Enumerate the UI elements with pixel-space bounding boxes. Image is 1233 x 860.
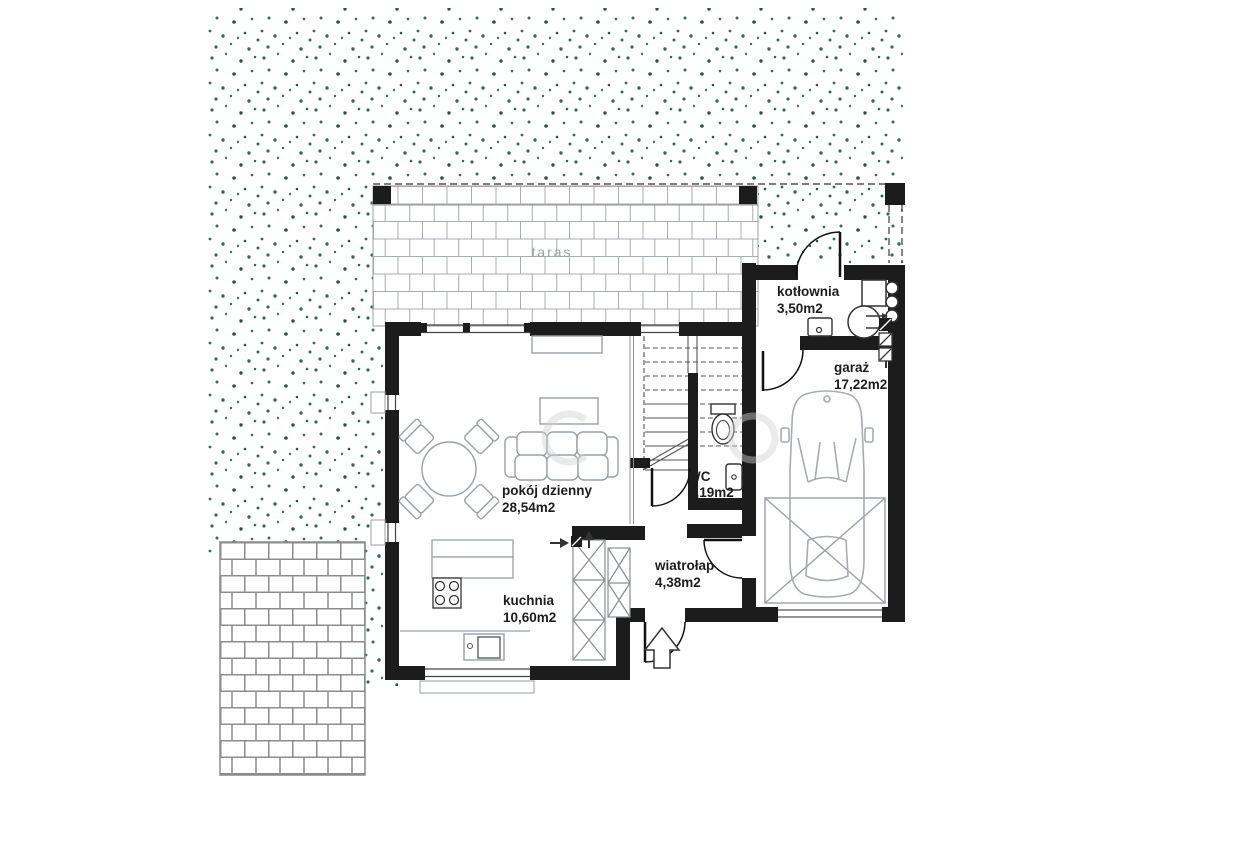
room-area-garaz: 17,22m2 (834, 377, 887, 392)
patio-brick-paving (220, 542, 365, 775)
room-label-pokoj-dzienny: pokój dzienny (502, 483, 592, 498)
kitchen-island (432, 540, 513, 578)
room-area-wiatrolap: 4,38m2 (655, 575, 701, 590)
room-label-garaz: garaż (834, 360, 870, 375)
room-area-pokoj-dzienny: 28,54m2 (502, 500, 555, 515)
floorplan-canvas: taras kotłownia 3,50m2 garaż 17,22m2 pok… (0, 0, 1233, 860)
sofa (505, 432, 618, 480)
water-heater-icon (862, 280, 886, 306)
room-area-wc: 2,19m2 (688, 485, 734, 500)
utility-sink-icon (808, 318, 832, 336)
room-area-kuchnia: 10,60m2 (503, 610, 556, 625)
room-area-kotlownia: 3,50m2 (777, 301, 823, 316)
room-label-taras: taras (531, 244, 572, 260)
meter-boxes (879, 318, 892, 361)
room-label-wiatrolap: wiatrołap (654, 558, 714, 573)
stove-icon (433, 578, 461, 608)
room-label-kuchnia: kuchnia (503, 593, 555, 608)
corner-column (885, 183, 905, 205)
tv-sideboard (532, 336, 602, 353)
room-label-wc: WC (688, 469, 711, 484)
dining-table (422, 442, 476, 496)
room-label-kotlownia: kotłownia (777, 284, 840, 299)
